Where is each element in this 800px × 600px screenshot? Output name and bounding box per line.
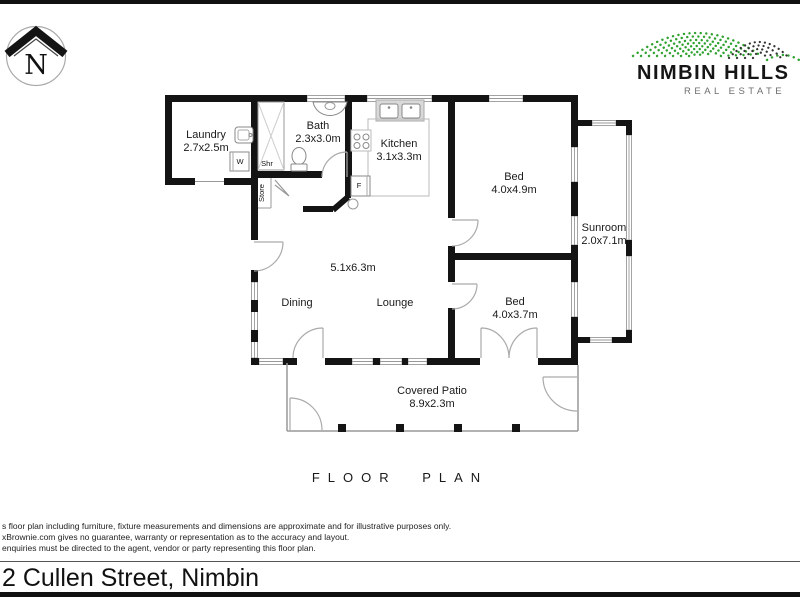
- sink-bowl-right: [402, 104, 420, 118]
- patio-right-door-arc: [543, 377, 577, 411]
- dining-left-door-arc: [254, 242, 283, 271]
- bed1-dims: 4.0x4.9m: [491, 184, 536, 197]
- patio-left-door-arc: [290, 398, 322, 430]
- toilet-bowl: [292, 148, 306, 165]
- disclaimer-line-1: s floor plan including furniture, fixtur…: [2, 521, 451, 532]
- basin-drain: [325, 103, 335, 110]
- dining-label: Dining: [281, 297, 312, 310]
- kitchen-dims: 3.1x3.3m: [376, 151, 421, 164]
- bed2-french-door-left-arc: [481, 328, 509, 358]
- toilet-tank: [291, 164, 307, 171]
- sink-tap-right: [410, 106, 413, 109]
- room-label-patio: Covered Patio 8.9x2.3m: [397, 385, 467, 411]
- bath-dims: 2.3x3.0m: [295, 133, 340, 146]
- hall-door-pivot: [348, 199, 358, 209]
- living-dims-label: 5.1x6.3m: [330, 262, 375, 275]
- disclaimer-line-3: enquiries must be directed to the agent,…: [2, 543, 451, 554]
- floor-plan-page: N NIMBIN HILLS REAL ESTATE: [0, 0, 800, 600]
- laundry-dims: 2.7x2.5m: [183, 142, 228, 155]
- dining-bottom-door-arc: [293, 328, 323, 358]
- patio-name: Covered Patio: [397, 385, 467, 398]
- property-address: 2 Cullen Street, Nimbin: [2, 564, 259, 593]
- bed1-name: Bed: [491, 171, 536, 184]
- laundry-tub-bowl: [238, 130, 249, 140]
- lounge-label: Lounge: [377, 297, 414, 310]
- room-label-bath: Bath 2.3x3.0m: [295, 120, 340, 146]
- room-label-bed2: Bed 4.0x3.7m: [492, 296, 537, 322]
- sunroom-name: Sunroom: [581, 222, 626, 235]
- fridge-label: F: [357, 182, 362, 190]
- bed2-door-arc: [452, 284, 477, 309]
- room-label-laundry: Laundry 2.7x2.5m: [183, 129, 228, 155]
- room-label-sunroom: Sunroom 2.0x7.1m: [581, 222, 626, 248]
- washer-label: W: [236, 158, 243, 166]
- kitchen-name: Kitchen: [376, 138, 421, 151]
- disclaimer-line-2: xBrownie.com gives no guarantee, warrant…: [2, 532, 451, 543]
- sink-tap-left: [388, 106, 391, 109]
- bed2-dims: 4.0x3.7m: [492, 309, 537, 322]
- bath-name: Bath: [295, 120, 340, 133]
- bed2-french-door-right-arc: [509, 328, 537, 358]
- store-door-leaf: [275, 180, 289, 196]
- laundry-name: Laundry: [183, 129, 228, 142]
- address-divider-rule: [0, 561, 800, 562]
- bed2-name: Bed: [492, 296, 537, 309]
- floor-plan-title: FLOOR PLAN: [312, 470, 488, 485]
- bath-door-arc: [322, 152, 347, 177]
- room-label-bed1: Bed 4.0x4.9m: [491, 171, 536, 197]
- bottom-border-rule: [0, 592, 800, 597]
- disclaimer-text: s floor plan including furniture, fixtur…: [2, 521, 451, 554]
- shower-label: Shr: [261, 160, 273, 168]
- room-label-kitchen: Kitchen 3.1x3.3m: [376, 138, 421, 164]
- store-label: Store: [258, 184, 266, 202]
- patio-dims: 8.9x2.3m: [397, 398, 467, 411]
- sink-bowl-left: [380, 104, 398, 118]
- hall-diagonal-wall: [333, 197, 348, 210]
- bed1-door-arc: [452, 220, 478, 246]
- sunroom-dims: 2.0x7.1m: [581, 235, 626, 248]
